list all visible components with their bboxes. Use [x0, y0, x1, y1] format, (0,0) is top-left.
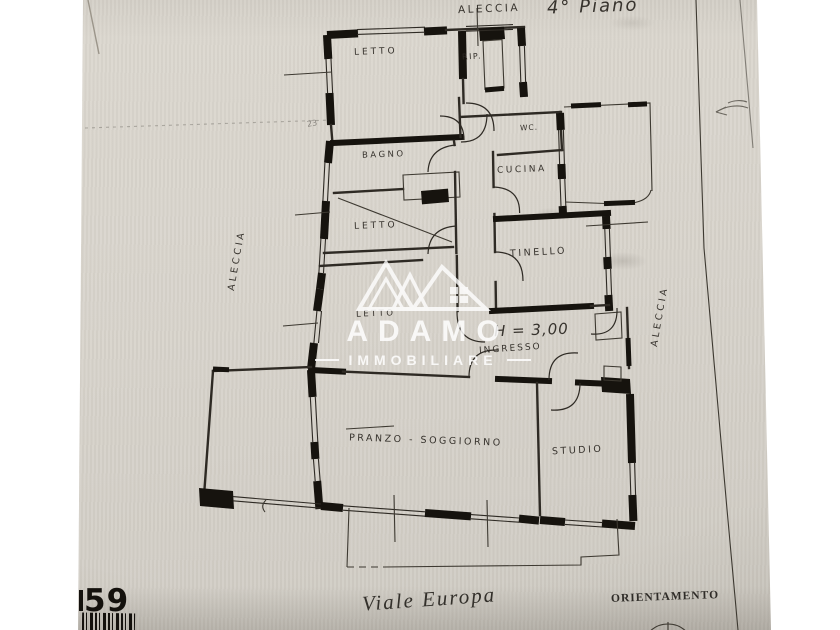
- balcony-bottom: [347, 508, 619, 567]
- pencil-mark: 23: [306, 118, 318, 129]
- watermark-rule-left: [315, 359, 339, 361]
- boundary-label-top: ALECCIA: [458, 2, 521, 16]
- adamo-logo-icon: [353, 257, 493, 313]
- watermark-tagline: IMMOBILIARE: [348, 352, 497, 368]
- watermark-brand: ADAMO: [298, 315, 548, 349]
- room-label-letto-2: LETTO: [354, 220, 398, 232]
- agency-watermark: ADAMO IMMOBILIARE: [298, 257, 548, 368]
- watermark-rule-right: [507, 359, 531, 361]
- room-label-rip: RIP.: [462, 51, 482, 61]
- room-label-cucina: CUCINA: [497, 164, 547, 176]
- floor-note: 4° Piano: [547, 0, 639, 19]
- scribble-arrow-icon: [716, 101, 748, 115]
- room-label-bagno: BAGNO: [362, 149, 406, 161]
- logo-window-icon: [450, 287, 468, 303]
- balcony-top-right: [564, 103, 652, 204]
- scanned-floor-plan-photo: ALECCIA 4° Piano LETTO RIP. BAGNO WC. CU…: [0, 0, 840, 630]
- room-label-wc: WC.: [520, 123, 538, 133]
- compass-icon: [642, 622, 694, 630]
- barcode: [82, 613, 135, 630]
- cut-digit-sliver: [79, 590, 83, 611]
- room-label-letto-1: LETTO: [354, 46, 398, 58]
